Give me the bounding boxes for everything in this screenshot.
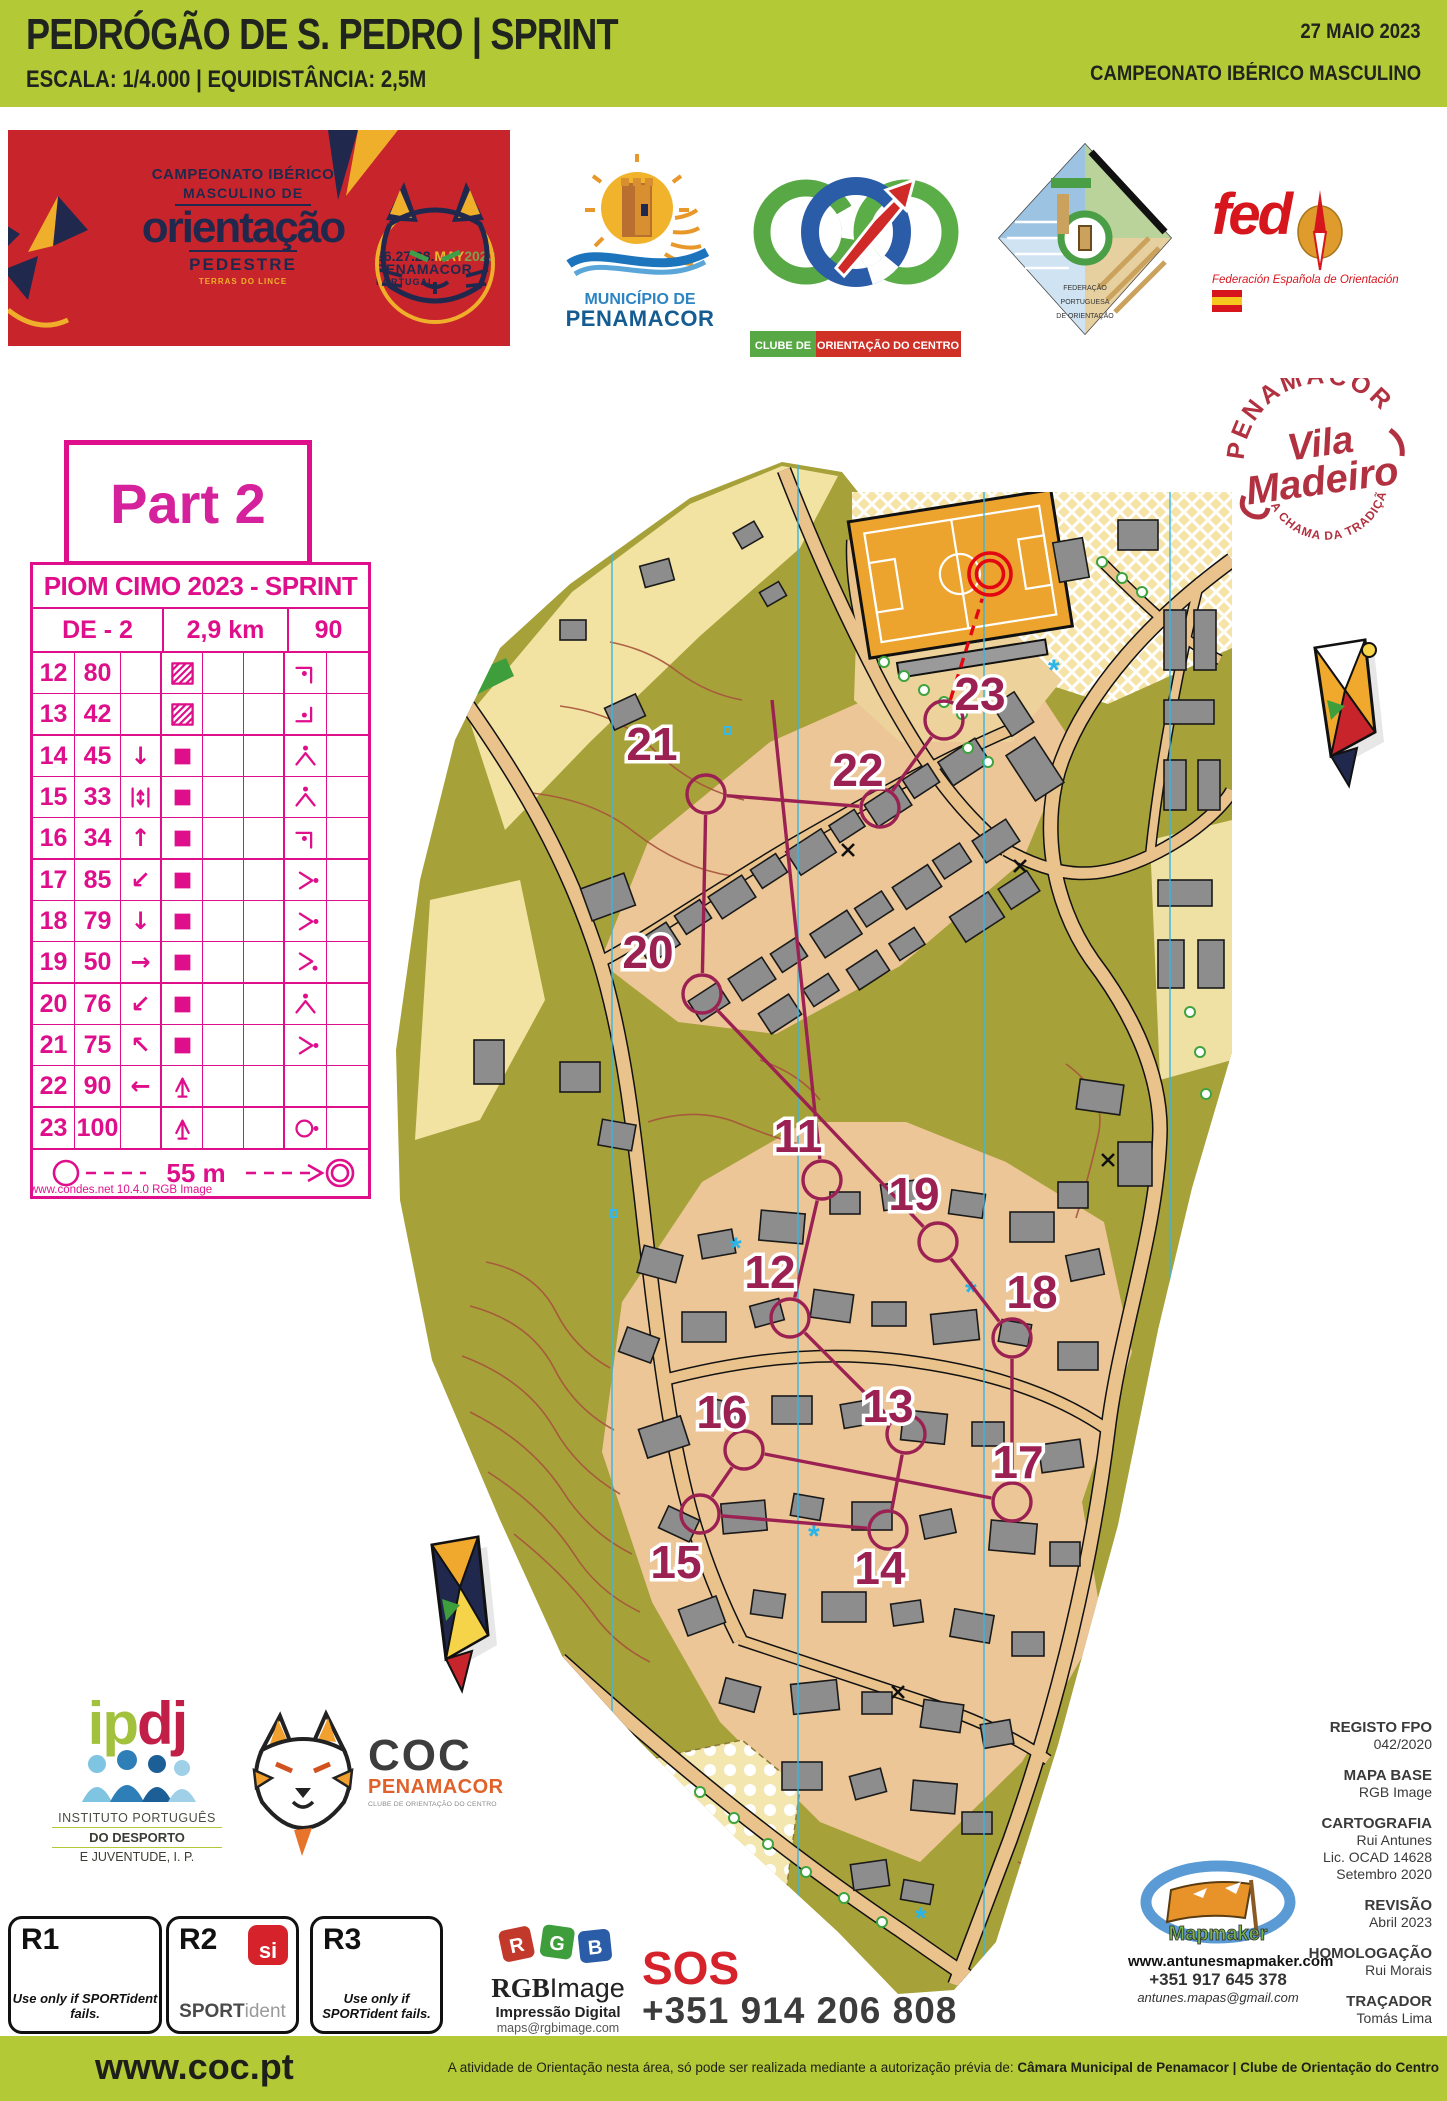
credit-value: Rui Antunes bbox=[1132, 1832, 1432, 1849]
ct-cell-e bbox=[203, 860, 244, 901]
ct-cell-f bbox=[244, 984, 285, 1025]
svg-text:ORIENTAÇÃO DO CENTRO: ORIENTAÇÃO DO CENTRO bbox=[817, 339, 960, 352]
ct-cell-c: → bbox=[121, 942, 162, 984]
ct-cell-num: 14 bbox=[33, 736, 75, 777]
sos-label: SOS bbox=[642, 1946, 1062, 1990]
ct-cell-f bbox=[244, 736, 285, 777]
ct-cell-f bbox=[244, 653, 285, 694]
ct-cell-code: 42 bbox=[75, 694, 121, 736]
ct-cell-f bbox=[244, 818, 285, 860]
ipdj-logo: ipdj INSTITUTO PORTUGUÊS DO DESPORTO E J… bbox=[52, 1698, 222, 1864]
svg-text:19: 19 bbox=[888, 1168, 939, 1220]
ct-cell-e bbox=[203, 777, 244, 818]
ct-cell-c: ← bbox=[121, 1066, 162, 1108]
ct-cell-num: 17 bbox=[33, 860, 75, 901]
credit-value: Lic. OCAD 14628 bbox=[1132, 1849, 1432, 1866]
control-description-table: PIOM CIMO 2023 - SPRINT DE - 2 2,9 km 90… bbox=[30, 562, 371, 1199]
ct-cell-g bbox=[285, 653, 327, 694]
fedo-compass-icon bbox=[1292, 188, 1348, 272]
ct-cell-code: 75 bbox=[75, 1025, 121, 1066]
ct-cell-e bbox=[203, 901, 244, 942]
ct-cell-d bbox=[162, 1108, 203, 1150]
ct-cell-f bbox=[244, 1066, 285, 1108]
map-scale: ESCALA: 1/4.000 | EQUIDISTÂNCIA: 2,5M bbox=[26, 66, 426, 94]
ct-cell-e bbox=[203, 1025, 244, 1066]
ct-cell-d bbox=[162, 984, 203, 1025]
ct-cell-c bbox=[121, 1108, 162, 1150]
svg-text:23: 23 bbox=[954, 668, 1005, 720]
ct-cell-h bbox=[327, 860, 368, 901]
ct-cell-code: 100 bbox=[75, 1108, 121, 1150]
svg-text:*: * bbox=[730, 1232, 742, 1265]
ct-cell-f bbox=[244, 942, 285, 984]
ct-cell-h bbox=[327, 777, 368, 818]
ct-cell-c: ↙ bbox=[121, 984, 162, 1025]
ct-cell-num: 18 bbox=[33, 901, 75, 942]
ct-cell-e bbox=[203, 653, 244, 694]
sun-tower-icon bbox=[555, 148, 725, 288]
ct-cell-c: ↓ bbox=[121, 736, 162, 777]
ct-cell-h bbox=[327, 1025, 368, 1066]
ct-cell-g bbox=[285, 1025, 327, 1066]
svg-text:22: 22 bbox=[832, 744, 883, 796]
ct-cell-g bbox=[285, 984, 327, 1025]
ct-cell-num: 23 bbox=[33, 1108, 75, 1150]
course-length: 2,9 km bbox=[164, 609, 289, 651]
credit-value: 042/2020 bbox=[1132, 1736, 1432, 1753]
svg-text:PORTUGUESA: PORTUGUESA bbox=[1061, 299, 1110, 306]
ct-cell-c bbox=[121, 694, 162, 736]
ct-cell-g bbox=[285, 736, 327, 777]
ct-cell-code: 85 bbox=[75, 860, 121, 901]
svg-text:*: * bbox=[1180, 1284, 1192, 1317]
credit-value: Setembro 2020 bbox=[1132, 1866, 1432, 1883]
svg-text:15: 15 bbox=[650, 1536, 701, 1588]
ct-cell-f bbox=[244, 1108, 285, 1150]
lynx-icon bbox=[248, 1708, 358, 1858]
ct-cell-e bbox=[203, 1108, 244, 1150]
ct-cell-d bbox=[162, 1025, 203, 1066]
ct-cell-h bbox=[327, 694, 368, 736]
ct-cell-h bbox=[327, 984, 368, 1025]
ct-cell-d bbox=[162, 694, 203, 736]
lynx-head-art bbox=[360, 174, 510, 346]
ct-cell-c: ↓ bbox=[121, 901, 162, 942]
compass-arrow-art bbox=[8, 160, 118, 346]
coc-rings-icon bbox=[748, 150, 963, 340]
sportident-icon: si bbox=[248, 1925, 288, 1965]
svg-text:FEDERAÇÃO: FEDERAÇÃO bbox=[1063, 283, 1107, 292]
ct-cell-g bbox=[285, 1066, 327, 1108]
championship-name: CAMPEONATO IBÉRICO MASCULINO bbox=[1090, 62, 1421, 86]
ct-cell-d bbox=[162, 942, 203, 984]
ct-cell-h bbox=[327, 736, 368, 777]
ct-cell-code: 80 bbox=[75, 653, 121, 694]
ct-cell-e bbox=[203, 736, 244, 777]
svg-text:17: 17 bbox=[992, 1436, 1043, 1488]
backup-box-r1: R1 Use only if SPORTident fails. bbox=[8, 1916, 162, 2034]
ct-cell-d bbox=[162, 901, 203, 942]
ct-cell-e bbox=[203, 694, 244, 736]
backup-box-r2: R2 si SPORTident bbox=[166, 1916, 299, 2034]
spain-flag-icon bbox=[1212, 290, 1242, 312]
part-label: Part 2 bbox=[64, 440, 312, 566]
fedo-logo: fed Federación Española de Orientación bbox=[1212, 188, 1427, 318]
ct-cell-f bbox=[244, 901, 285, 942]
ct-cell-g bbox=[285, 942, 327, 984]
svg-text:CLUBE DE: CLUBE DE bbox=[755, 340, 811, 352]
sos-contact: SOS +351 914 206 808 bbox=[642, 1946, 1062, 2032]
ct-cell-code: 45 bbox=[75, 736, 121, 777]
credit-value: RGB Image bbox=[1132, 1784, 1432, 1801]
ct-cell-d bbox=[162, 860, 203, 901]
credit-label: MAPA BASE bbox=[1132, 1767, 1432, 1784]
ct-cell-code: 33 bbox=[75, 777, 121, 818]
course-title: PIOM CIMO 2023 - SPRINT bbox=[33, 565, 368, 609]
credit-label: TRAÇADOR bbox=[1132, 1993, 1432, 2010]
crowd-icon bbox=[72, 1750, 202, 1802]
stadium bbox=[848, 490, 1076, 682]
credit-value: Rui Morais bbox=[1132, 1962, 1432, 1979]
svg-text:14: 14 bbox=[854, 1542, 906, 1594]
svg-text:12: 12 bbox=[744, 1246, 795, 1298]
credit-value: Abril 2023 bbox=[1132, 1914, 1432, 1931]
ct-cell-num: 21 bbox=[33, 1025, 75, 1066]
rgb-image-logo: R G B RGBImage Impressão Digital maps@rg… bbox=[478, 1922, 638, 2049]
vila-madeiro-stamp: PENAMACOR A CHAMA DA TRADIÇÃO Vila Madei… bbox=[1222, 378, 1422, 553]
ct-cell-d bbox=[162, 653, 203, 694]
ct-cell-e bbox=[203, 942, 244, 984]
ct-cell-num: 20 bbox=[33, 984, 75, 1025]
svg-text:DE ORIENTAÇÃO: DE ORIENTAÇÃO bbox=[1056, 311, 1114, 320]
ct-cell-num: 13 bbox=[33, 694, 75, 736]
svg-text:G: G bbox=[548, 1932, 566, 1956]
ct-cell-h bbox=[327, 942, 368, 984]
ct-cell-num: 22 bbox=[33, 1066, 75, 1108]
credit-label: HOMOLOGAÇÃO bbox=[1132, 1945, 1432, 1962]
ct-cell-g bbox=[285, 818, 327, 860]
page-title: PEDRÓGÃO DE S. PEDRO | SPRINT bbox=[26, 10, 618, 60]
ct-cell-e bbox=[203, 1066, 244, 1108]
ct-cell-code: 79 bbox=[75, 901, 121, 942]
coc-banner: CLUBE DE ORIENTAÇÃO DO CENTRO bbox=[748, 329, 963, 359]
pennant-emblem-right bbox=[1315, 640, 1384, 786]
fpo-diamond-logo: FEDERAÇÃO PORTUGUESA DE ORIENTAÇÃO bbox=[995, 138, 1175, 343]
ct-cell-g bbox=[285, 777, 327, 818]
ct-cell-d bbox=[162, 1066, 203, 1108]
header-bar: PEDRÓGÃO DE S. PEDRO | SPRINT ESCALA: 1/… bbox=[0, 0, 1447, 107]
ct-cell-f bbox=[244, 694, 285, 736]
ct-cell-c bbox=[121, 777, 162, 818]
ct-cell-code: 76 bbox=[75, 984, 121, 1025]
credit-label: REGISTO FPO bbox=[1132, 1719, 1432, 1736]
ct-cell-num: 16 bbox=[33, 818, 75, 860]
ct-cell-e bbox=[203, 818, 244, 860]
ct-cell-h bbox=[327, 1066, 368, 1108]
ct-cell-h bbox=[327, 1108, 368, 1150]
ct-cell-code: 50 bbox=[75, 942, 121, 984]
svg-text:18: 18 bbox=[1006, 1266, 1057, 1318]
ct-cell-num: 15 bbox=[33, 777, 75, 818]
ct-cell-f bbox=[244, 860, 285, 901]
svg-text:B: B bbox=[587, 1936, 604, 1959]
coc-logo: CLUBE DE ORIENTAÇÃO DO CENTRO bbox=[748, 150, 963, 340]
ct-cell-d bbox=[162, 736, 203, 777]
ct-cell-g bbox=[285, 694, 327, 736]
ct-cell-h bbox=[327, 653, 368, 694]
ct-cell-c: ↙ bbox=[121, 860, 162, 901]
course-summary: DE - 2 2,9 km 90 bbox=[33, 609, 368, 653]
footer-bar: www.coc.pt A atividade de Orientação nes… bbox=[0, 2036, 1447, 2101]
credit-label: CARTOGRAFIA bbox=[1132, 1815, 1432, 1832]
credit-value: Tomás Lima bbox=[1132, 2010, 1432, 2027]
svg-text:13: 13 bbox=[862, 1380, 913, 1432]
svg-text:*: * bbox=[1048, 654, 1060, 687]
ct-cell-c: ↑ bbox=[121, 818, 162, 860]
ct-cell-c bbox=[121, 653, 162, 694]
ct-cell-g bbox=[285, 901, 327, 942]
municipio-penamacor-logo: MUNICÍPIO DE PENAMACOR bbox=[545, 148, 735, 348]
event-date: 27 MAIO 2023 bbox=[1301, 20, 1421, 44]
ct-cell-d bbox=[162, 818, 203, 860]
ct-cell-c: ↖ bbox=[121, 1025, 162, 1066]
backup-box-r3: R3 Use only if SPORTident fails. bbox=[310, 1916, 443, 2034]
ct-cell-code: 34 bbox=[75, 818, 121, 860]
condes-credit: www.condes.net 10.4.0 RGB Image bbox=[30, 1184, 212, 1196]
website-url: www.coc.pt bbox=[95, 2046, 294, 2088]
credit-label: REVISÃO bbox=[1132, 1897, 1432, 1914]
map-credits: REGISTO FPO042/2020MAPA BASERGB ImageCAR… bbox=[1132, 1705, 1432, 2027]
svg-text:*: * bbox=[915, 1902, 927, 1935]
ct-cell-g bbox=[285, 860, 327, 901]
ct-cell-d bbox=[162, 777, 203, 818]
control-rows: 128013421445↓15331634↑1785↙1879↓1950→207… bbox=[33, 653, 368, 1150]
ct-cell-h bbox=[327, 901, 368, 942]
svg-text:20: 20 bbox=[622, 926, 673, 978]
course-name: DE - 2 bbox=[33, 609, 164, 651]
ct-cell-num: 12 bbox=[33, 653, 75, 694]
course-climb: 90 bbox=[289, 609, 368, 651]
coc-penamacor-logo: COC PENAMACOR CLUBE DE ORIENTAÇÃO DO CEN… bbox=[248, 1708, 508, 1878]
svg-text:21: 21 bbox=[626, 718, 677, 770]
ct-cell-f bbox=[244, 777, 285, 818]
svg-text:11: 11 bbox=[774, 1110, 823, 1162]
sos-phone: +351 914 206 808 bbox=[642, 1990, 1062, 2032]
rgb-dice-icon: R G B bbox=[493, 1922, 623, 1968]
map-terrain: ****** bbox=[380, 450, 1250, 2010]
svg-text:16: 16 bbox=[696, 1386, 747, 1438]
event-banner: CAMPEONATO IBÉRICO MASCULINO DE orientaç… bbox=[8, 130, 510, 346]
banner-text: CAMPEONATO IBÉRICO MASCULINO DE orientaç… bbox=[118, 166, 368, 286]
ct-cell-code: 90 bbox=[75, 1066, 121, 1108]
ct-cell-f bbox=[244, 1025, 285, 1066]
ct-cell-num: 19 bbox=[33, 942, 75, 984]
ct-cell-g bbox=[285, 1108, 327, 1150]
ct-cell-h bbox=[327, 818, 368, 860]
ct-cell-e bbox=[203, 984, 244, 1025]
legal-notice: A atividade de Orientação nesta área, só… bbox=[448, 2060, 1439, 2075]
pennant-emblem-left bbox=[432, 1537, 497, 1691]
